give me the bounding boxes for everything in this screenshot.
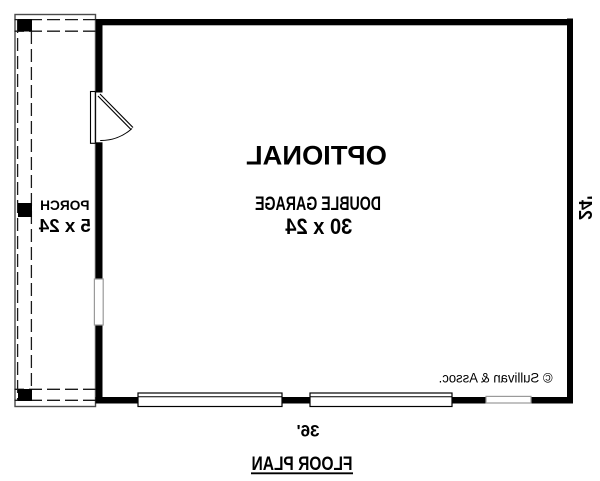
svg-text:FLOOR PLAN: FLOOR PLAN [252,453,353,475]
svg-text:© Sullivan & Assoc.: © Sullivan & Assoc. [439,370,553,386]
svg-text:36': 36' [297,422,320,441]
svg-text:DOUBLE GARAGE: DOUBLE GARAGE [255,194,381,215]
svg-text:30 x 24: 30 x 24 [285,214,353,239]
svg-text:PORCH: PORCH [40,197,90,213]
svg-text:5 x 24: 5 x 24 [39,216,91,236]
svg-text:24': 24' [575,196,595,220]
svg-text:OPTIONAL: OPTIONAL [246,141,387,171]
